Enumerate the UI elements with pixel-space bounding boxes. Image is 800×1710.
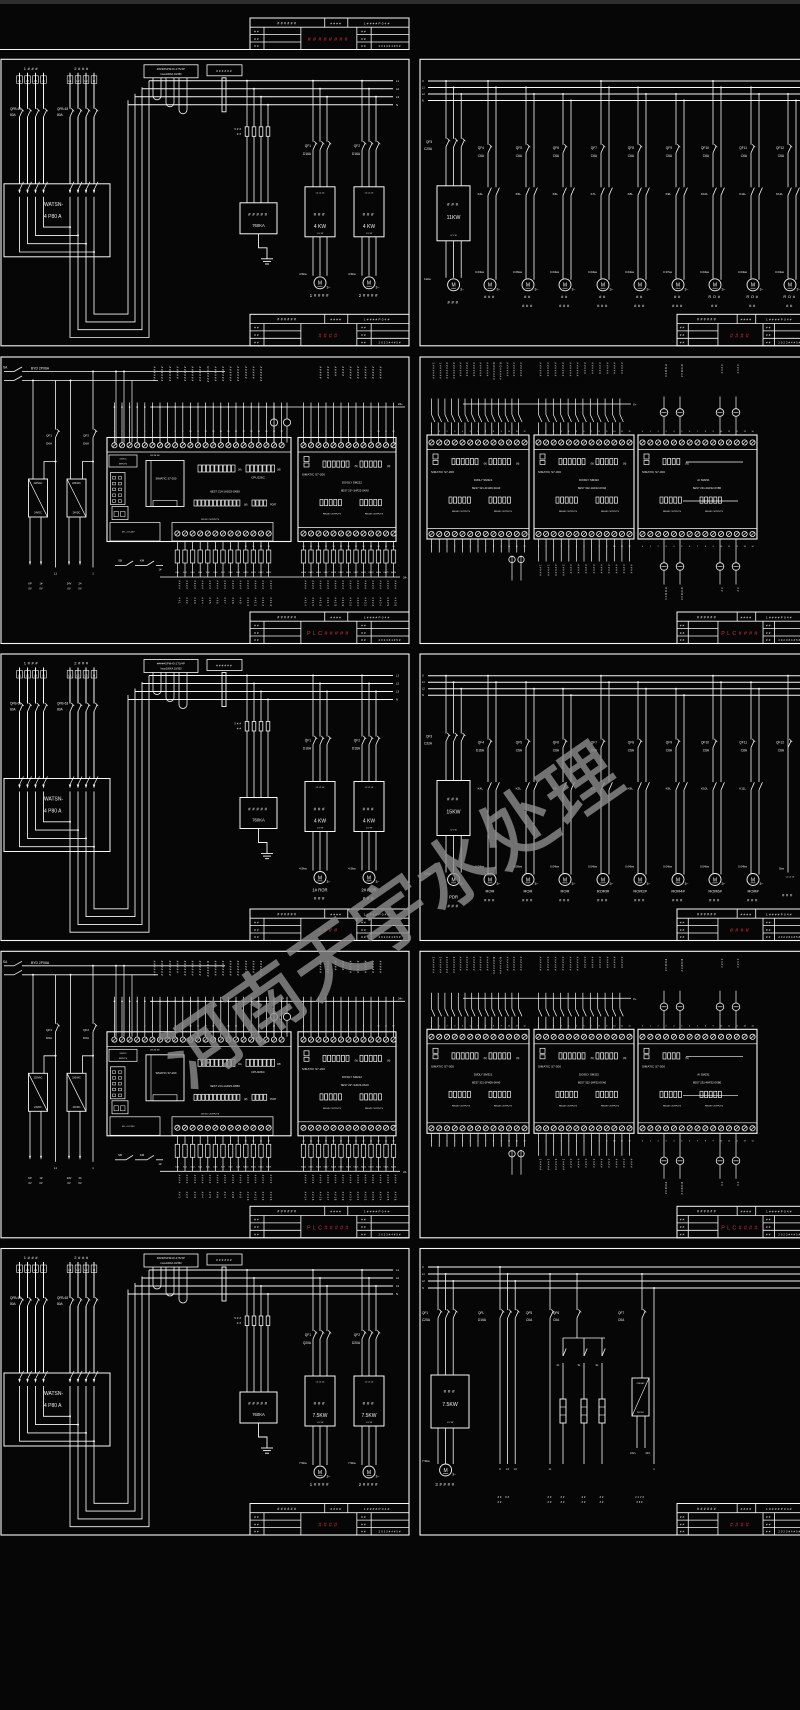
svg-text:2: 2: [446, 1025, 447, 1027]
svg-text:##: ##: [361, 341, 366, 345]
svg-text:####: ####: [730, 333, 751, 339]
svg-text:##: ##: [680, 1225, 685, 1229]
svg-text:3~: 3~: [760, 287, 764, 291]
svg-text:####: ####: [615, 565, 618, 575]
svg-text:1M 2M 3M: 1M 2M 3M: [150, 1049, 160, 1051]
svg-text:##: ##: [237, 727, 242, 731]
svg-text:M: M: [676, 283, 680, 289]
svg-text:CPU226C: CPU226C: [251, 1070, 265, 1074]
svg-text:RELAY OUTPUTS: RELAY OUTPUTS: [601, 510, 620, 513]
svg-text:KA18: KA18: [331, 1165, 337, 1168]
svg-text:4: 4: [568, 431, 569, 433]
svg-text:15KW: 15KW: [446, 810, 460, 816]
svg-text:##5: ##5: [208, 1192, 211, 1199]
svg-text:KA26: KA26: [391, 1165, 397, 1168]
svg-text:####: ####: [254, 1175, 257, 1184]
svg-text:3~: 3~: [722, 287, 726, 291]
svg-text:7.5KW: 7.5KW: [442, 1402, 458, 1408]
svg-text:##: ##: [254, 928, 259, 932]
svg-text:5: 5: [681, 431, 682, 433]
svg-text:1####P04#: 1####P04#: [766, 912, 793, 916]
svg-text:DO/DLY SM322: DO/DLY SM322: [579, 478, 599, 482]
svg-text:11: 11: [516, 431, 518, 433]
svg-text:11: 11: [516, 1025, 518, 1027]
svg-text:##9: ##9: [238, 1192, 241, 1199]
svg-text:##: ##: [254, 1218, 259, 1222]
svg-text:KA19: KA19: [338, 571, 344, 574]
svg-text:K9L: K9L: [666, 787, 672, 791]
svg-text:####: ####: [246, 581, 249, 590]
svg-text:#####: #####: [605, 363, 608, 375]
svg-text:##: ##: [766, 1522, 771, 1526]
svg-text:####: ####: [394, 581, 397, 590]
svg-text:KA20: KA20: [346, 571, 352, 574]
svg-text:KA15: KA15: [308, 1165, 314, 1168]
svg-text:0.04kw: 0.04kw: [625, 865, 635, 869]
svg-text:C6A: C6A: [553, 749, 560, 753]
svg-text:#####: #####: [583, 363, 586, 375]
svg-text:######: ######: [183, 367, 187, 383]
svg-text:8: 8: [705, 1025, 706, 1027]
svg-text:14: 14: [751, 1025, 753, 1027]
svg-text:####: ####: [330, 615, 342, 619]
svg-text:##: ##: [361, 1530, 366, 1534]
svg-text:##: ##: [361, 326, 366, 330]
svg-text:######: ######: [505, 957, 508, 972]
svg-text:3~: 3~: [376, 285, 380, 289]
svg-text:RO#####: RO#####: [499, 363, 502, 381]
svg-text:##7: ##7: [223, 1192, 226, 1199]
svg-text:QFB-63: QFB-63: [57, 107, 68, 111]
svg-text:1###: 1###: [24, 66, 40, 71]
svg-text:######: ######: [229, 961, 233, 977]
svg-text:##25: ##25: [386, 1192, 389, 1201]
svg-text:##: ##: [600, 1496, 605, 1499]
svg-text:(N): (N): [355, 1059, 359, 1062]
svg-text:1####: 1####: [546, 565, 549, 577]
svg-text:RO#####: RO#####: [492, 363, 495, 381]
svg-text:KP: KP: [28, 582, 32, 586]
svg-text:##: ##: [254, 326, 259, 330]
svg-text:######: ######: [697, 1210, 717, 1214]
svg-text:######: ######: [183, 961, 187, 977]
svg-text:####: ####: [386, 1175, 389, 1184]
svg-text:M: M: [638, 283, 642, 289]
svg-text:####: ####: [569, 1159, 572, 1169]
svg-text:#####: #####: [583, 957, 586, 969]
svg-text:5##: 5##: [234, 722, 242, 726]
svg-text:80A: 80A: [10, 113, 17, 117]
svg-text:RELAY OUTPUTS: RELAY OUTPUTS: [365, 1107, 384, 1110]
svg-text:U V W: U V W: [366, 828, 373, 830]
svg-text:D20A: D20A: [352, 1341, 361, 1345]
svg-text:DO/DLY SM222: DO/DLY SM222: [342, 1075, 362, 1079]
svg-text:ROR: ROR: [524, 889, 533, 894]
svg-text:9: 9: [713, 431, 714, 433]
svg-text:1####: 1####: [310, 293, 330, 298]
svg-text:##9: ##9: [238, 598, 241, 605]
svg-text:######: ######: [277, 1210, 297, 1214]
svg-text:######: ######: [153, 367, 157, 383]
svg-text:X+: X+: [633, 403, 637, 407]
svg-text:######: ######: [236, 961, 240, 977]
svg-text:6: 6: [689, 1025, 690, 1027]
svg-text:####: ####: [334, 367, 338, 378]
svg-text:DI/DLY SM321: DI/DLY SM321: [474, 1072, 493, 1076]
svg-text:6: 6: [689, 1140, 690, 1142]
svg-text:14: 14: [751, 546, 753, 548]
svg-text:QF1: QF1: [46, 434, 52, 438]
svg-text:0: 0: [538, 1025, 539, 1027]
svg-text:0/B: 0/B: [277, 469, 281, 472]
svg-text:11kw: 11kw: [424, 277, 432, 281]
svg-text:####: ####: [341, 581, 344, 590]
svg-text:3~: 3~: [376, 1475, 380, 1479]
svg-text:K11L: K11L: [739, 787, 746, 791]
svg-text:KM: KM: [140, 1153, 145, 1157]
svg-text:##18: ##18: [334, 1192, 337, 1201]
svg-text:######: ######: [153, 961, 157, 977]
svg-text:QF11: QF11: [739, 146, 747, 150]
svg-text:####: ####: [269, 1175, 272, 1184]
svg-text:###: ###: [363, 1401, 376, 1406]
svg-text:C6A: C6A: [516, 749, 523, 753]
svg-text:##: ##: [766, 1530, 771, 1534]
svg-text:N: N: [93, 1268, 95, 1272]
svg-text:##: ##: [498, 1496, 503, 1499]
svg-text:12: 12: [736, 1025, 738, 1027]
svg-text:3: 3: [666, 1025, 667, 1027]
svg-text:#####: #####: [356, 367, 360, 380]
svg-text:######: ######: [277, 318, 297, 322]
svg-text:####: ####: [185, 1175, 188, 1184]
svg-text:###: ###: [782, 893, 794, 898]
svg-text:1####P04#: 1####P04#: [766, 1507, 793, 1511]
svg-text:######: ######: [546, 957, 549, 972]
svg-text:KA11: KA11: [251, 1165, 257, 1168]
svg-text:######: ######: [576, 363, 579, 378]
svg-text:######: ######: [191, 961, 195, 977]
svg-text:###: ###: [484, 898, 496, 903]
svg-text:C6A: C6A: [741, 154, 748, 158]
svg-text:##24: ##24: [379, 1192, 382, 1201]
svg-text:M: M: [318, 281, 322, 287]
svg-text:#####: #####: [248, 1401, 268, 1406]
svg-text:C6A: C6A: [703, 154, 710, 158]
svg-text:U: U: [422, 80, 424, 83]
svg-text:24V-: 24V-: [646, 1452, 651, 1455]
svg-text:####: ####: [304, 1175, 307, 1184]
svg-text:##: ##: [680, 638, 685, 642]
svg-text:(N): (N): [623, 1057, 627, 1060]
svg-text:3: 3: [561, 431, 562, 433]
svg-text:####: ####: [379, 1175, 382, 1184]
svg-text:24-: 24-: [403, 1170, 407, 1174]
svg-text:##: ##: [680, 928, 685, 932]
svg-text:SB: SB: [118, 559, 122, 563]
svg-text:0V: 0V: [28, 1181, 31, 1185]
svg-text:7: 7: [485, 431, 486, 433]
svg-text:C6A: C6A: [628, 154, 635, 158]
svg-text:######: ######: [459, 957, 462, 972]
svg-text:####: ####: [349, 581, 352, 590]
svg-text:######: ######: [479, 363, 482, 378]
svg-text:1###: 1###: [24, 661, 40, 666]
svg-text:######: ######: [221, 961, 225, 977]
svg-text:6ES7 214-1AD23-0XB0: 6ES7 214-1AD23-0XB0: [210, 490, 240, 494]
svg-text:######: ######: [465, 363, 468, 378]
svg-text:QF4: QF4: [478, 146, 484, 150]
svg-text:####: ####: [216, 581, 219, 590]
svg-text:####: ####: [379, 581, 382, 590]
svg-text:##: ##: [720, 1182, 723, 1187]
svg-text:####: ####: [607, 1159, 610, 1169]
svg-text:220VAC: 220VAC: [637, 1382, 645, 1385]
svg-text:######: ######: [554, 363, 557, 378]
svg-text:0.04kw: 0.04kw: [700, 865, 710, 869]
svg-text:D16A: D16A: [478, 1318, 487, 1322]
svg-text:RO####: RO####: [206, 961, 210, 978]
svg-text:###: ###: [709, 898, 721, 903]
svg-text:N: N: [422, 100, 424, 103]
svg-text:0: 0: [431, 431, 432, 433]
svg-text:1####P04#: 1####P04#: [364, 1210, 391, 1214]
svg-text:4 KW: 4 KW: [363, 224, 376, 230]
svg-text:5: 5: [576, 431, 577, 433]
svg-text:12: 12: [523, 1025, 525, 1027]
svg-text:####: ####: [720, 365, 723, 375]
svg-text:12: 12: [628, 431, 630, 433]
svg-text:##14: ##14: [304, 598, 307, 607]
svg-text:KA23: KA23: [368, 571, 374, 574]
svg-text:SB: SB: [118, 1153, 122, 1157]
svg-text:QF5: QF5: [526, 1311, 532, 1315]
svg-text:###: ###: [314, 896, 326, 901]
svg-text:220VAC: 220VAC: [72, 482, 81, 485]
svg-text:##: ##: [680, 631, 685, 635]
svg-text:2######: 2######: [452, 363, 455, 380]
svg-text:2023#4#5#: 2023#4#5#: [778, 340, 800, 344]
svg-text:0V: 0V: [78, 587, 81, 591]
svg-text:##20: ##20: [349, 598, 352, 607]
svg-text:11: 11: [621, 1025, 623, 1027]
svg-text:0: 0: [642, 431, 643, 433]
svg-text:PDR##: PDR##: [664, 365, 667, 378]
svg-text:####: ####: [330, 1210, 342, 1214]
svg-text:##22: ##22: [364, 1192, 367, 1201]
svg-text:##23: ##23: [371, 1192, 374, 1201]
svg-text:######: ######: [697, 615, 717, 619]
svg-text:####: ####: [364, 581, 367, 590]
svg-text:BYD 2P06A: BYD 2P06A: [31, 367, 50, 371]
svg-text:##: ##: [680, 920, 685, 924]
svg-text:L2: L2: [396, 1276, 400, 1280]
svg-text:##: ##: [680, 333, 685, 337]
svg-text:9: 9: [606, 431, 607, 433]
svg-text:2: 2: [658, 1140, 659, 1142]
svg-text:###: ###: [444, 1389, 457, 1394]
svg-text:220VAC: 220VAC: [34, 1076, 43, 1079]
svg-text:1###: 1###: [24, 1255, 40, 1260]
svg-text:1####P04#: 1####P04#: [766, 1210, 793, 1214]
svg-text:C6A: C6A: [553, 1318, 560, 1322]
svg-text:##15: ##15: [311, 598, 314, 607]
svg-text:24+: 24+: [398, 996, 403, 1000]
svg-text:(N): (N): [484, 463, 488, 466]
svg-text:####: ####: [741, 318, 753, 322]
svg-text:C6A: C6A: [666, 749, 673, 753]
svg-text:##: ##: [361, 333, 366, 337]
svg-text:####: ####: [741, 1507, 753, 1511]
svg-text:3~: 3~: [760, 882, 764, 886]
svg-text:80A: 80A: [10, 708, 17, 712]
svg-text:3~: 3~: [797, 287, 800, 291]
svg-text:##1: ##1: [178, 1192, 181, 1199]
svg-text:####: ####: [319, 1175, 322, 1184]
svg-text:U V W: U V W: [317, 233, 324, 235]
svg-text:C32A: C32A: [424, 742, 433, 746]
svg-text:24-: 24-: [403, 576, 407, 580]
svg-text:##8: ##8: [231, 598, 234, 605]
svg-text:##: ##: [254, 333, 259, 337]
svg-text:#####: #####: [598, 363, 601, 375]
svg-text:RELAY OUTPUTS: RELAY OUTPUTS: [494, 1104, 513, 1107]
svg-text:3~: 3~: [327, 285, 331, 289]
svg-text:1####: 1####: [539, 1159, 542, 1171]
svg-text:KA14: KA14: [301, 1165, 307, 1168]
svg-text:0V: 0V: [39, 1181, 42, 1185]
svg-text:####: ####: [741, 615, 753, 619]
svg-text:0.04kw: 0.04kw: [738, 270, 748, 274]
svg-text:##: ##: [766, 1233, 771, 1237]
svg-text:######: ######: [236, 367, 240, 383]
svg-text:3: 3: [666, 431, 667, 433]
svg-text:###: ###: [447, 202, 460, 207]
svg-text:##: ##: [766, 920, 771, 924]
svg-text:KA13: KA13: [266, 571, 272, 574]
svg-text:#####: #####: [605, 957, 608, 969]
svg-text:####: ####: [371, 1175, 374, 1184]
svg-text:U V W: U V W: [450, 830, 457, 832]
svg-text:####: ####: [261, 581, 264, 590]
svg-text:QF12: QF12: [776, 741, 784, 745]
svg-text:######: ######: [259, 367, 263, 383]
svg-text:####: ####: [584, 565, 587, 575]
svg-text:PLC####: PLC####: [721, 631, 759, 637]
svg-text:###: ###: [559, 303, 571, 308]
svg-text:#####: #####: [379, 961, 383, 974]
svg-text:RELAY OUTPUTS: RELAY OUTPUTS: [365, 513, 384, 516]
svg-text:0V: 0V: [67, 1181, 70, 1185]
svg-text:####: ####: [386, 581, 389, 590]
svg-text:######: ######: [697, 318, 717, 322]
svg-text:##12: ##12: [261, 598, 264, 607]
svg-text:M: M: [713, 283, 717, 289]
svg-text:(N): (N): [685, 1057, 689, 1060]
svg-text:2######: 2######: [452, 957, 455, 974]
svg-text:######: ######: [216, 69, 232, 73]
svg-text:#####: #####: [251, 961, 255, 974]
svg-text:4: 4: [568, 1025, 569, 1027]
svg-text:24V: 24V: [67, 1176, 72, 1180]
svg-text:(N): (N): [591, 1057, 595, 1060]
svg-text:760KA: 760KA: [252, 1412, 265, 1417]
svg-text:K8L: K8L: [628, 192, 634, 196]
svg-text:M: M: [488, 877, 492, 883]
svg-text:C6A: C6A: [516, 154, 523, 158]
svg-text:11: 11: [621, 431, 623, 433]
svg-text:N: N: [422, 694, 424, 697]
svg-text:##19: ##19: [341, 1192, 344, 1201]
svg-text:##: ##: [766, 638, 771, 642]
svg-text:####: ####: [334, 1175, 337, 1184]
svg-text:24VDC: 24VDC: [119, 1053, 126, 1055]
svg-text:M: M: [788, 283, 792, 289]
svg-text:12: 12: [523, 431, 525, 433]
svg-text:##: ##: [582, 1496, 587, 1499]
svg-text:N: N: [43, 79, 45, 83]
svg-text:######: ######: [519, 363, 522, 378]
svg-text:PDR##: PDR##: [664, 588, 667, 601]
svg-text:L2: L2: [396, 87, 400, 91]
svg-text:###: ###: [672, 898, 684, 903]
svg-text:######: ######: [221, 367, 225, 383]
svg-text:2: 2: [553, 431, 554, 433]
svg-text:3~: 3~: [722, 882, 726, 886]
svg-text:U V W: U V W: [317, 828, 324, 830]
svg-text:PORT: PORT: [270, 1099, 277, 1101]
svg-text:KA17: KA17: [323, 1165, 329, 1168]
svg-text:7.5KW: 7.5KW: [361, 1413, 376, 1419]
svg-text:1######: 1######: [432, 363, 435, 380]
svg-text:####: ####: [185, 581, 188, 590]
svg-text:7: 7: [697, 1140, 698, 1142]
svg-text:24VDC: 24VDC: [73, 1106, 81, 1109]
svg-text:4: 4: [462, 1025, 463, 1027]
svg-text:QF1: QF1: [305, 739, 311, 743]
svg-text:(N): (N): [591, 463, 595, 466]
svg-text:0V: 0V: [39, 587, 42, 591]
svg-text:K12L: K12L: [776, 192, 783, 196]
svg-text:L1 L2 L3: L1 L2 L3: [365, 192, 374, 194]
svg-text:##: ##: [749, 303, 757, 308]
svg-text:######: ######: [277, 615, 297, 619]
svg-text:##19: ##19: [341, 598, 344, 607]
svg-text:4 KW: 4 KW: [314, 819, 327, 825]
svg-text:##: ##: [361, 1233, 366, 1237]
svg-text:#####SPM40-275/4P: #####SPM40-275/4P: [157, 67, 185, 71]
svg-text:##: ##: [254, 935, 259, 939]
svg-text:(N): (N): [387, 1059, 391, 1062]
svg-text:0: 0: [431, 1025, 432, 1027]
svg-text:CPU226C: CPU226C: [251, 476, 265, 480]
svg-text:6ES7 322-1HF22-0XA0: 6ES7 322-1HF22-0XA0: [578, 486, 607, 490]
svg-text:2: 2: [658, 1025, 659, 1027]
svg-text:L3: L3: [396, 95, 400, 99]
svg-text:QF7: QF7: [618, 1311, 624, 1315]
svg-text:Imax100KA 10/350: Imax100KA 10/350: [160, 668, 182, 671]
svg-text:M: M: [638, 877, 642, 883]
svg-text:QF9: QF9: [666, 741, 672, 745]
svg-text:2######: 2######: [445, 957, 448, 974]
svg-text:####: ####: [741, 912, 753, 916]
svg-text:KA22: KA22: [361, 1165, 367, 1168]
svg-text:ROR4#: ROR4#: [671, 889, 685, 894]
svg-text:2: 2: [553, 1025, 554, 1027]
svg-text:####: ####: [330, 912, 342, 916]
svg-text:1######: 1######: [432, 957, 435, 974]
svg-text:L1 L2 L3: L1 L2 L3: [316, 1382, 325, 1384]
